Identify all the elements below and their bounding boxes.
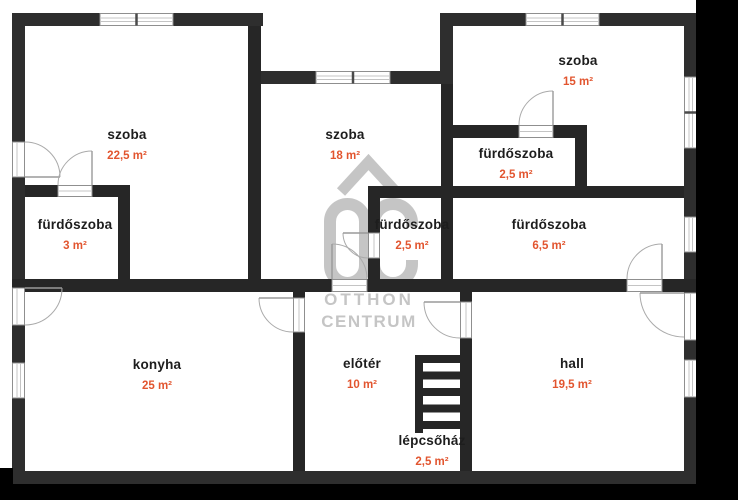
- door-szoba15-furdoszoba25: [519, 91, 553, 138]
- window-szoba22-top: [100, 14, 173, 26]
- window-furdoszoba65-right: [685, 217, 697, 252]
- door-furdoszoba3: [58, 151, 92, 197]
- door-konyha-balcony: [13, 288, 63, 325]
- window-szoba18-top: [316, 72, 390, 84]
- window-konyha-left: [13, 363, 25, 398]
- window-hall-right: [685, 360, 697, 397]
- watermark-line1: OTTHON: [324, 290, 414, 309]
- window-szoba15-right: [685, 77, 697, 148]
- watermark-line2: CENTRUM: [321, 312, 417, 331]
- door-eloter-hall: [424, 302, 472, 338]
- stairs-icon: [415, 355, 460, 433]
- floorplan-drawing: OTTHON CENTRUM: [0, 0, 738, 500]
- door-hall-furdoszoba65: [627, 244, 662, 292]
- floorplan: OTTHON CENTRUM: [0, 0, 738, 500]
- window-szoba15-top: [526, 14, 599, 26]
- door-hall-balcony: [640, 293, 697, 340]
- door-szoba22-balcony: [13, 142, 61, 177]
- door-konyha-eloter: [259, 298, 305, 332]
